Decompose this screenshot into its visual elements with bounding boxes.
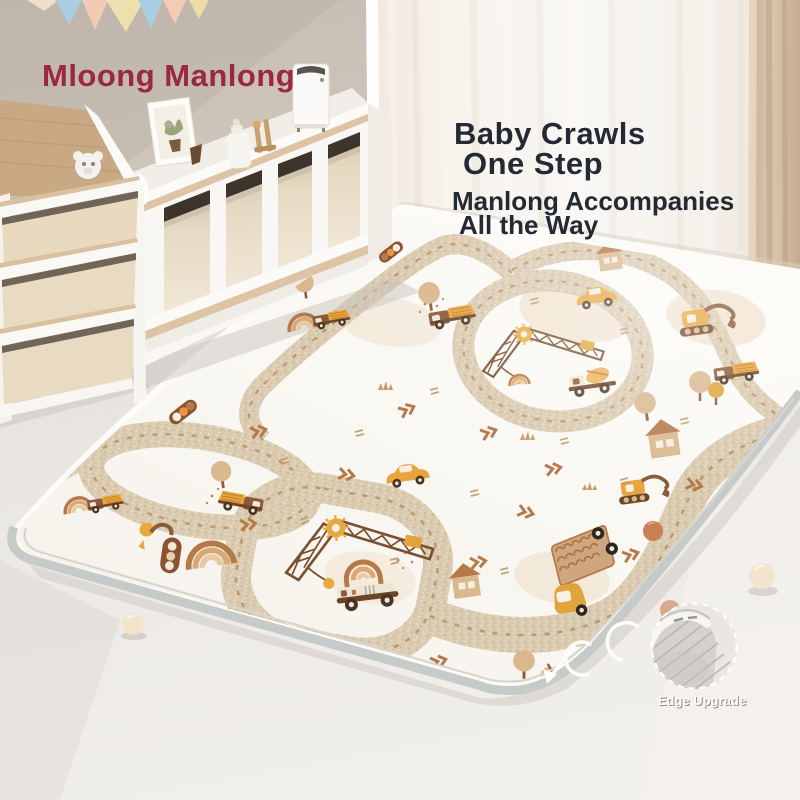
svg-text:Mloong Manlong: Mloong Manlong [42, 58, 295, 93]
svg-text:All the Way: All the Way [459, 210, 599, 240]
svg-text:One Step: One Step [463, 146, 603, 181]
svg-text:Edge Upgrade: Edge Upgrade [658, 694, 746, 708]
